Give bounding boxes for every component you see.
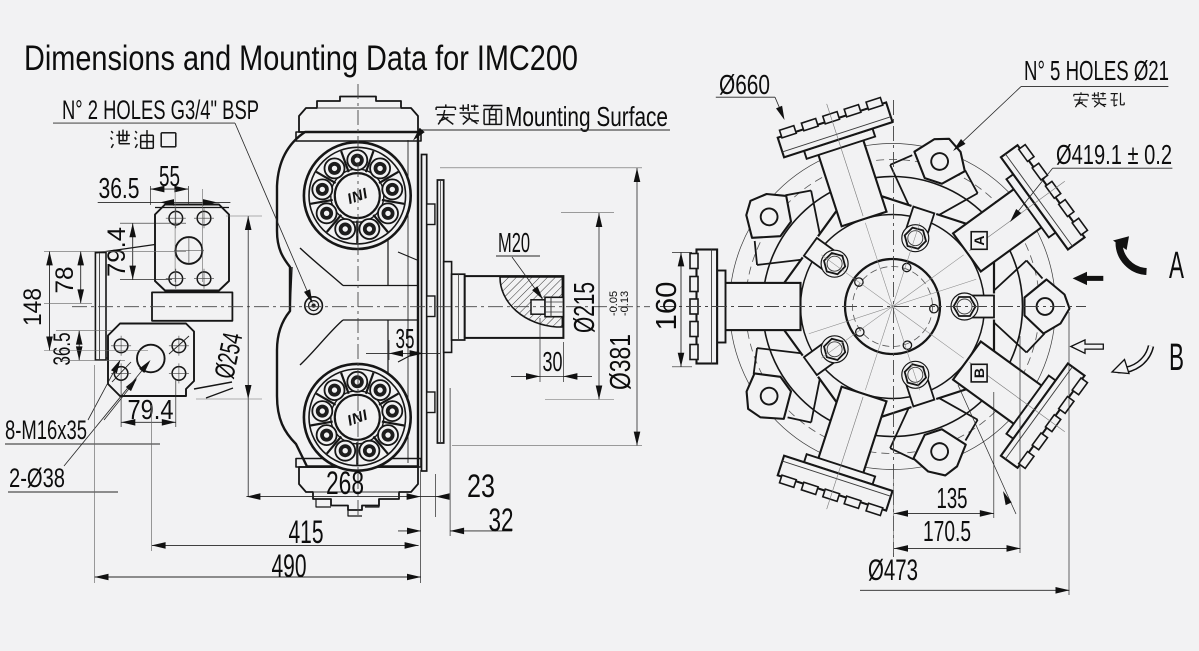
svg-text:35: 35 [396, 323, 415, 354]
svg-text:Ø419.1 ± 0.2: Ø419.1 ± 0.2 [1056, 139, 1172, 170]
svg-text:160: 160 [651, 282, 683, 331]
svg-text:B: B [1169, 337, 1184, 379]
svg-text:Ø215: Ø215 [569, 282, 601, 333]
svg-text:79.4: 79.4 [103, 227, 131, 277]
svg-text:490: 490 [272, 548, 307, 584]
svg-text:36.5: 36.5 [99, 173, 140, 205]
svg-text:78: 78 [51, 267, 79, 294]
svg-text:32: 32 [489, 502, 514, 538]
svg-text:-0.13: -0.13 [619, 291, 631, 316]
svg-text:415: 415 [289, 514, 324, 550]
svg-text:A: A [1169, 245, 1184, 287]
svg-text:23: 23 [467, 468, 495, 504]
svg-text:N° 5 HOLES Ø21: N° 5 HOLES Ø21 [1024, 55, 1169, 86]
svg-text:30: 30 [543, 346, 563, 377]
svg-text:268: 268 [326, 465, 364, 501]
svg-text:135: 135 [937, 483, 968, 515]
svg-text:M20: M20 [498, 227, 530, 258]
svg-text:55: 55 [159, 161, 180, 193]
svg-text:B: B [971, 368, 987, 378]
svg-text:Ø473: Ø473 [868, 554, 918, 587]
svg-text:148: 148 [19, 288, 47, 326]
svg-text:Mounting Surface: Mounting Surface [505, 101, 668, 132]
svg-text:N° 2 HOLES G3/4" BSP: N° 2 HOLES G3/4" BSP [62, 95, 259, 125]
svg-text:Ø660: Ø660 [719, 69, 770, 100]
svg-text:8-M16x35: 8-M16x35 [5, 415, 87, 445]
svg-text:2-Ø38: 2-Ø38 [9, 463, 65, 493]
svg-text:79.4: 79.4 [128, 394, 174, 425]
svg-text:Dimensions and Mounting Data f: Dimensions and Mounting Data for IMC200 [24, 39, 578, 78]
svg-text:Ø381: Ø381 [605, 334, 637, 390]
svg-text:A: A [971, 235, 987, 245]
svg-text:170.5: 170.5 [923, 516, 971, 548]
